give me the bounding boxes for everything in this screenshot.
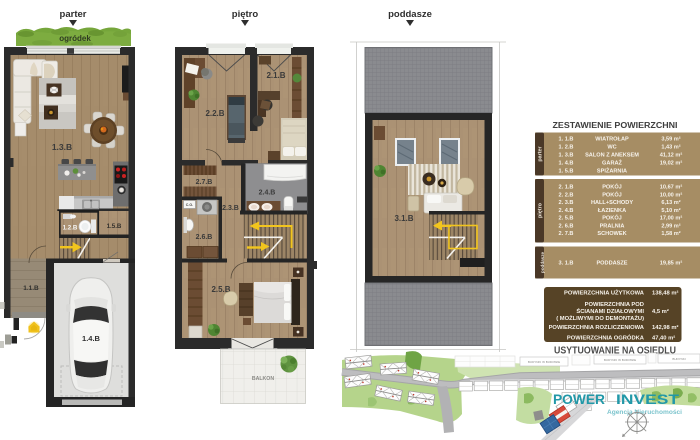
svg-text:19,85 m²: 19,85 m² — [660, 259, 683, 266]
svg-text:poddasze: poddasze — [540, 251, 545, 273]
svg-text:10,00 m²: 10,00 m² — [660, 191, 683, 198]
svg-text:1. 2.B: 1. 2.B — [559, 145, 574, 151]
svg-text:parter: parter — [60, 9, 87, 20]
svg-text:2. 3.B: 2. 3.B — [559, 200, 574, 206]
svg-text:1,43 m²: 1,43 m² — [661, 144, 680, 151]
svg-text:PRALNIA: PRALNIA — [600, 223, 625, 229]
svg-text:1.3.B: 1.3.B — [52, 142, 72, 152]
svg-text:2. 1.B: 2. 1.B — [559, 185, 574, 191]
svg-text:INVEST: INVEST — [616, 391, 680, 407]
svg-text:19,02 m²: 19,02 m² — [660, 160, 683, 167]
svg-text:6,13 m²: 6,13 m² — [661, 199, 680, 206]
svg-text:10,67 m²: 10,67 m² — [660, 184, 683, 191]
svg-text:poddasze: poddasze — [388, 9, 432, 20]
svg-text:2. 5.B: 2. 5.B — [559, 216, 574, 222]
svg-text:17,00 m²: 17,00 m² — [660, 215, 683, 222]
svg-text:piętro: piętro — [538, 202, 544, 218]
svg-text:2.6.B: 2.6.B — [196, 234, 213, 241]
svg-text:1. 5.B: 1. 5.B — [559, 169, 574, 175]
svg-text:SPIŻARNIA: SPIŻARNIA — [597, 168, 627, 175]
svg-text:POKÓJ: POKÓJ — [602, 214, 622, 222]
svg-text:41,12 m²: 41,12 m² — [660, 152, 683, 159]
svg-text:47,40 m²: 47,40 m² — [652, 335, 675, 342]
svg-text:POWIERZCHNIA OGRÓDKA: POWIERZCHNIA OGRÓDKA — [567, 334, 645, 342]
svg-text:1.1.B: 1.1.B — [23, 285, 39, 292]
svg-text:POWIERZCHNIA POD: POWIERZCHNIA POD — [585, 302, 644, 308]
svg-text:BUDYNKI W BUDOWIE: BUDYNKI W BUDOWIE — [528, 360, 560, 364]
svg-text:BUDYNKI: BUDYNKI — [672, 357, 686, 361]
svg-text:1.4.B: 1.4.B — [82, 334, 101, 343]
svg-text:ogródek: ogródek — [59, 34, 91, 43]
svg-text:1.5.B: 1.5.B — [107, 223, 122, 230]
svg-text:ZESTAWIENIE POWIERZCHNI: ZESTAWIENIE POWIERZCHNI — [553, 120, 678, 130]
svg-text:3.1.B: 3.1.B — [394, 214, 413, 223]
svg-text:parter: parter — [538, 145, 544, 161]
svg-text:ŚCIANAMI DZIAŁOWYMI: ŚCIANAMI DZIAŁOWYMI — [576, 308, 644, 315]
svg-text:142,98 m²: 142,98 m² — [652, 324, 678, 331]
svg-text:SCHOWEK: SCHOWEK — [597, 231, 626, 237]
svg-text:PODDASZE: PODDASZE — [596, 260, 627, 266]
svg-text:2.7.B: 2.7.B — [196, 179, 213, 186]
svg-text:SALON Z ANEKSEM: SALON Z ANEKSEM — [585, 153, 639, 159]
svg-text:138,48 m²: 138,48 m² — [652, 290, 678, 297]
svg-text:4,5 m²: 4,5 m² — [652, 308, 669, 315]
svg-text:5,10 m²: 5,10 m² — [661, 207, 680, 214]
svg-text:1. 3.B: 1. 3.B — [559, 153, 574, 159]
svg-text:2. 6.B: 2. 6.B — [559, 223, 574, 229]
svg-text:1. 4.B: 1. 4.B — [559, 161, 574, 167]
svg-text:POKÓJ: POKÓJ — [602, 183, 622, 191]
svg-text:POWER: POWER — [553, 391, 605, 407]
svg-text:WC: WC — [607, 145, 616, 151]
svg-text:3,59 m²: 3,59 m² — [661, 136, 680, 143]
svg-text:1. 1.B: 1. 1.B — [559, 137, 574, 143]
svg-text:1,58 m²: 1,58 m² — [661, 230, 680, 237]
svg-text:( MOŻLIWYMI DO DEMONTAŻU): ( MOŻLIWYMI DO DEMONTAŻU) — [556, 315, 644, 322]
svg-text:2.1.B: 2.1.B — [266, 71, 285, 80]
svg-text:3. 1.B: 3. 1.B — [559, 260, 574, 266]
svg-text:HALL+SCHODY: HALL+SCHODY — [591, 200, 633, 206]
svg-text:ŁAZIENKA: ŁAZIENKA — [598, 208, 626, 214]
svg-text:WIATROŁAP: WIATROŁAP — [595, 137, 629, 143]
svg-text:2. 4.B: 2. 4.B — [559, 208, 574, 214]
svg-text:2. 2.B: 2. 2.B — [559, 192, 574, 198]
svg-text:C.O.: C.O. — [186, 203, 193, 207]
svg-text:2. 7.B: 2. 7.B — [559, 231, 574, 237]
svg-text:2.2.B: 2.2.B — [205, 109, 224, 118]
svg-text:2,99 m²: 2,99 m² — [661, 222, 680, 229]
svg-text:POWIERZCHNIA UŻYTKOWA: POWIERZCHNIA UŻYTKOWA — [564, 290, 645, 297]
svg-text:BUDYNKI W BUDOWIE: BUDYNKI W BUDOWIE — [604, 358, 636, 362]
svg-text:BALKON: BALKON — [252, 376, 274, 382]
svg-text:POKÓJ: POKÓJ — [602, 190, 622, 198]
svg-text:GARAŻ: GARAŻ — [602, 160, 622, 167]
svg-text:2.3.B: 2.3.B — [222, 205, 239, 212]
svg-text:2.4.B: 2.4.B — [259, 190, 276, 197]
svg-text:POWIERZCHNIA ROZLICZENIOWA: POWIERZCHNIA ROZLICZENIOWA — [549, 325, 645, 331]
svg-text:1.2.B: 1.2.B — [63, 225, 78, 232]
svg-text:piętro: piętro — [232, 9, 259, 20]
